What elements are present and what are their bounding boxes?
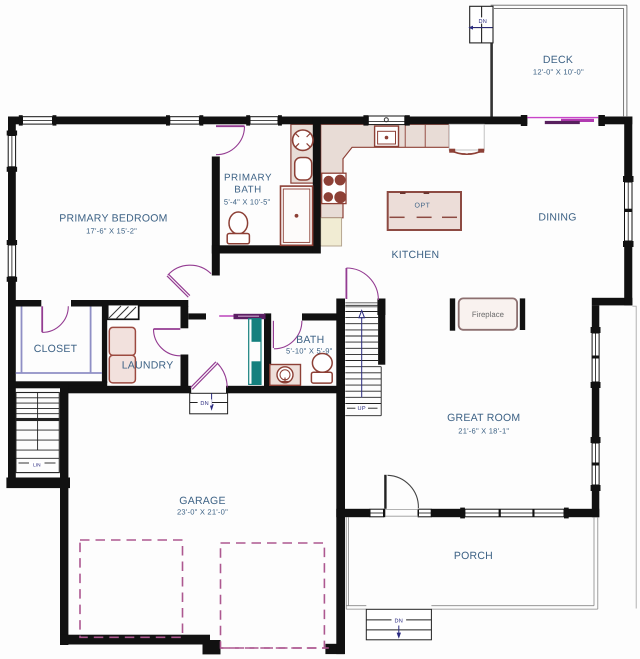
svg-text:5'-10" X 5'-9": 5'-10" X 5'-9" [286,346,333,355]
svg-text:LAUNDRY: LAUNDRY [122,359,174,371]
svg-text:PRIMARY: PRIMARY [224,173,272,184]
svg-text:Fireplace: Fireplace [472,310,504,319]
svg-text:BATH: BATH [234,185,261,196]
svg-text:DN: DN [394,619,403,625]
svg-text:DN: DN [200,401,209,407]
svg-text:GARAGE: GARAGE [179,495,225,507]
svg-text:OPT: OPT [415,203,431,210]
svg-text:BATH: BATH [296,334,324,346]
svg-text:KITCHEN: KITCHEN [391,249,439,261]
svg-text:23'-0" X 21'-0": 23'-0" X 21'-0" [177,507,228,516]
svg-text:12'-0" X 10'-0": 12'-0" X 10'-0" [533,68,584,77]
svg-text:DN: DN [478,19,487,25]
svg-text:5'-4" X 10'-5": 5'-4" X 10'-5" [224,198,271,207]
svg-text:21'-6" X 18'-1": 21'-6" X 18'-1" [458,427,509,436]
svg-text:DINING: DINING [538,212,576,224]
svg-text:PORCH: PORCH [454,550,493,562]
svg-text:DECK: DECK [543,54,573,66]
svg-text:PRIMARY BEDROOM: PRIMARY BEDROOM [59,213,167,225]
svg-text:GREAT ROOM: GREAT ROOM [447,412,520,424]
svg-text:17'-6" X 15'-2": 17'-6" X 15'-2" [86,227,137,236]
svg-text:LIN: LIN [33,462,41,468]
svg-text:UP: UP [358,406,366,412]
svg-text:CLOSET: CLOSET [34,343,78,355]
